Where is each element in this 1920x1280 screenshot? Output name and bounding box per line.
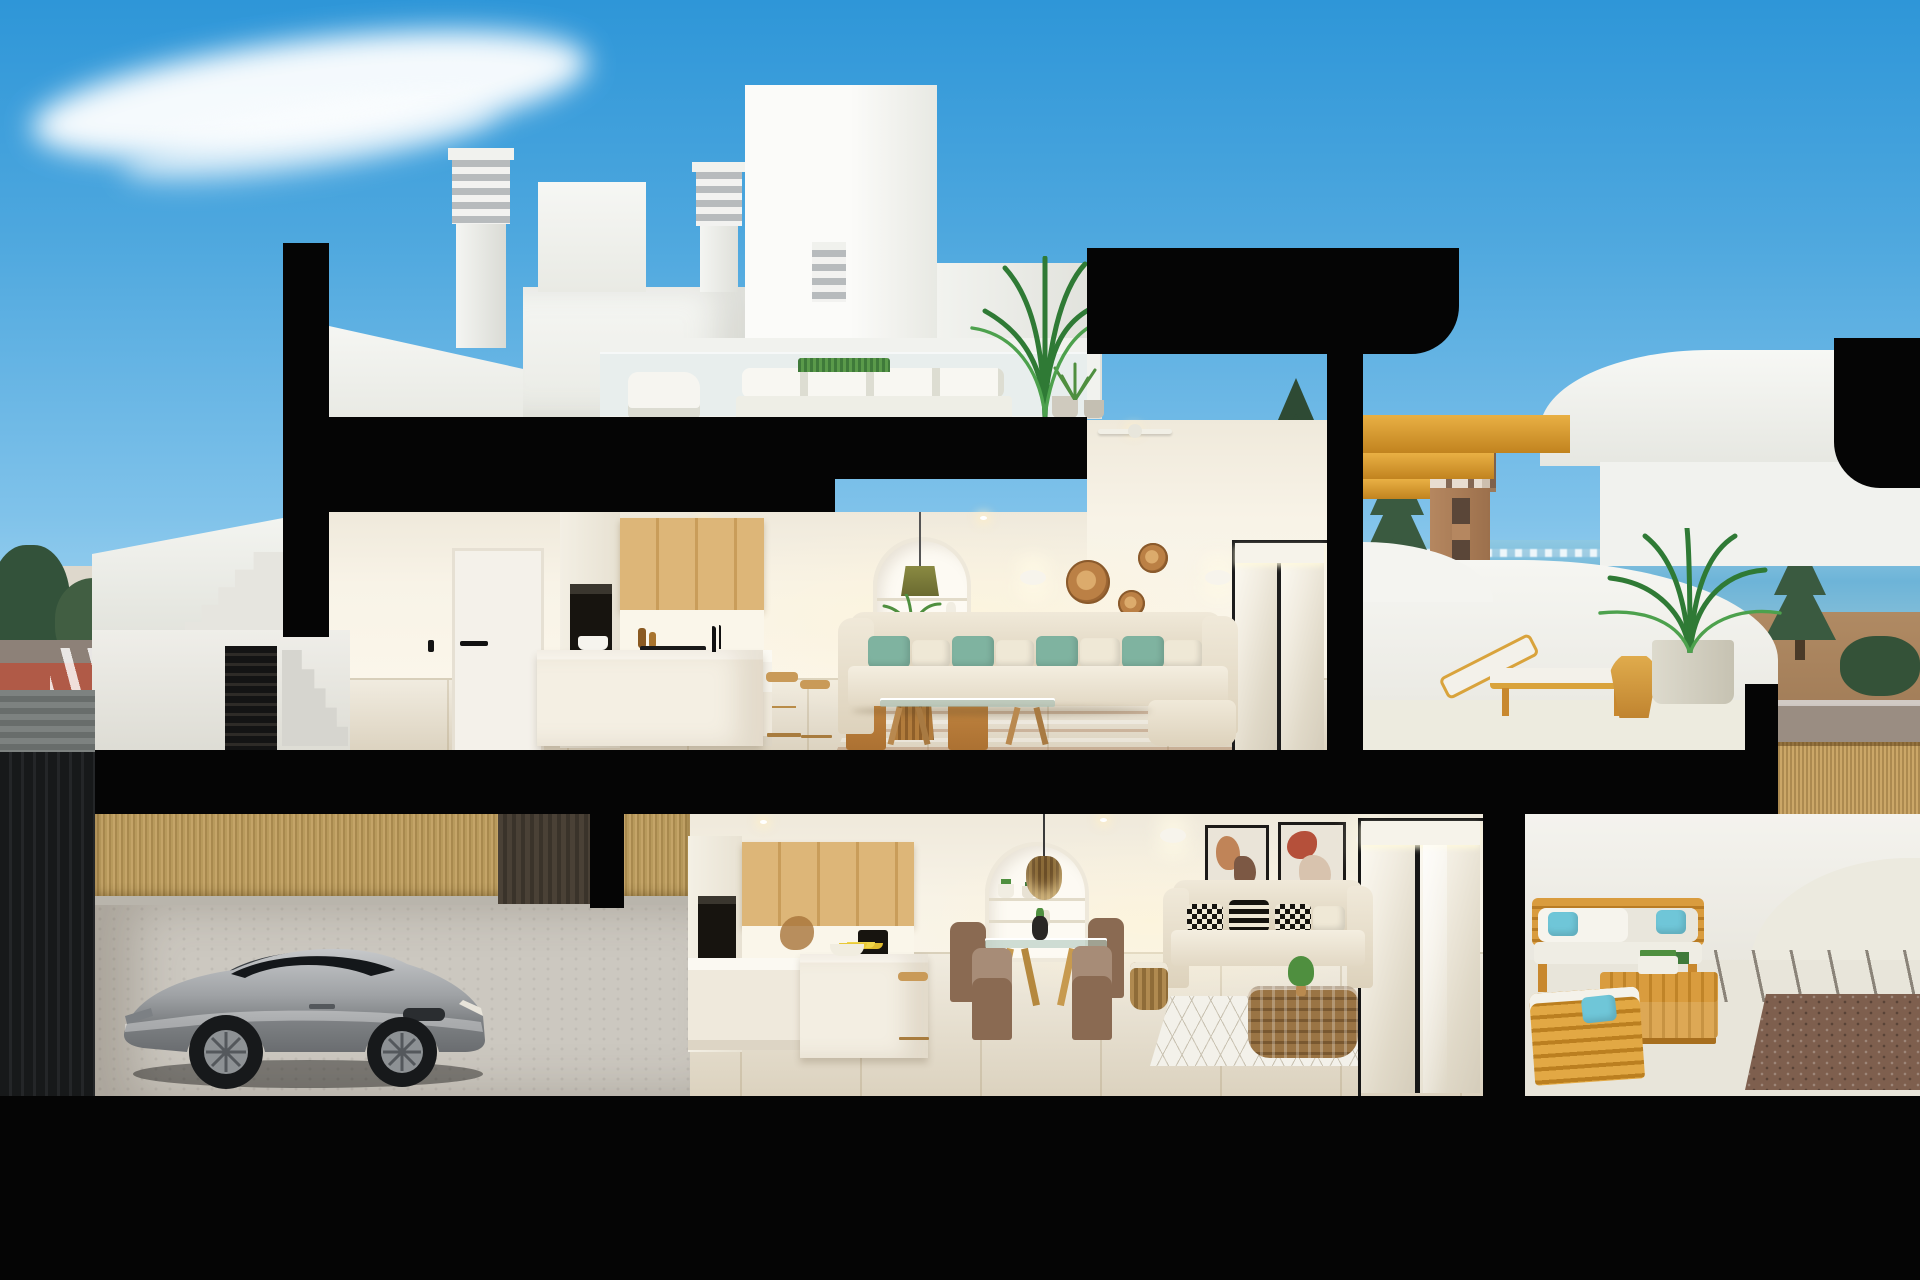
gravel-bed — [1745, 994, 1920, 1090]
chimney-louvered-3 — [812, 250, 846, 302]
upper-cabinets — [742, 842, 914, 926]
stair-soffit-step-2 — [1358, 453, 1494, 479]
niche-plant-pot — [998, 884, 1014, 898]
cut-wall-left — [283, 243, 329, 637]
pillow-turquoise — [1656, 910, 1686, 934]
sofa-seat — [1171, 930, 1365, 966]
upper-door-1-handle — [428, 640, 434, 652]
ground-base — [0, 1096, 1920, 1280]
pillow-cream — [1313, 906, 1345, 932]
ceiling-fan — [1098, 424, 1172, 438]
lower-sofa — [1163, 878, 1373, 1002]
pillow-teal — [952, 636, 994, 668]
basket-table-plant — [1288, 956, 1314, 986]
ceiling-spot — [980, 516, 987, 520]
cut-midfloor-stub — [1745, 684, 1778, 752]
stool-1 — [766, 672, 798, 682]
lower-chair-frontleft — [972, 948, 1012, 1040]
island-faucet — [712, 626, 716, 652]
table-leg — [1005, 707, 1020, 745]
bush-right-2 — [1840, 636, 1920, 696]
cut-roof-band-right — [1087, 248, 1459, 354]
glass-reflection — [1423, 845, 1447, 1093]
pillow-cream — [912, 640, 950, 668]
blind-box — [1361, 821, 1480, 845]
lounger-seat — [1490, 668, 1630, 689]
stool-lower — [898, 972, 928, 981]
table-leg-wood — [1021, 948, 1040, 1006]
upper-door-2 — [452, 548, 544, 756]
stair-soffit-step-1 — [1358, 415, 1570, 453]
pillow-cream — [1164, 640, 1202, 668]
pillow-cream — [996, 640, 1034, 668]
fan-blade — [1128, 424, 1142, 438]
cut-column-right — [1327, 354, 1363, 754]
pendant-lamp-olive — [901, 566, 939, 596]
cut-midfloor-slab — [95, 750, 1778, 814]
rattan-disc-medium — [1138, 543, 1168, 573]
sofa-chaise — [1148, 700, 1236, 746]
ceiling-spot — [1100, 818, 1107, 822]
stool-2 — [800, 680, 830, 689]
chimney-louvered-2 — [692, 162, 746, 292]
lower-kitchen — [630, 814, 960, 1074]
wood-leg — [1538, 964, 1547, 992]
pillow-teal — [1122, 636, 1164, 668]
basket-coffee-table — [1248, 986, 1358, 1058]
lounger-backrest — [1438, 633, 1540, 701]
table-leg — [1033, 707, 1048, 745]
chimney-cap — [448, 148, 514, 160]
glass-top — [880, 698, 1055, 707]
cut-roof-slab-thin — [835, 417, 1087, 479]
scene-stage — [0, 0, 1920, 1280]
chimney-shaft — [456, 224, 506, 348]
pillow-turquoise — [1548, 912, 1578, 936]
roof-bulkhead-2 — [538, 182, 646, 292]
wall-sconce-upper-2 — [1205, 570, 1231, 585]
pendant-cord-lower — [1043, 814, 1045, 858]
neighbour-wall-grey — [0, 690, 95, 752]
chimney-cap — [692, 162, 746, 172]
chimney-louvered-1 — [448, 148, 514, 348]
bottle — [638, 628, 646, 648]
floor-basket — [1130, 962, 1168, 1010]
pillow-teal — [868, 636, 910, 668]
dried-plant — [780, 916, 814, 950]
louvered-gate — [225, 646, 277, 750]
glass-pane — [1235, 543, 1281, 751]
fruit-bowl — [830, 944, 864, 956]
chimney-louvers — [696, 172, 742, 226]
sports-car — [103, 912, 503, 1096]
chimney-louvers — [452, 160, 510, 224]
upper-door-2-handle — [460, 641, 488, 646]
terrace-parapet-curl — [1363, 542, 1493, 602]
pillow-bw-check — [1275, 904, 1311, 932]
lower-sliding-doors — [1358, 818, 1489, 1102]
terrace-palm — [1585, 528, 1785, 653]
cut-junction-lower — [590, 810, 624, 908]
glass-coffee-table — [880, 698, 1055, 746]
upper-cabinets — [620, 518, 764, 610]
rattan-disc-large — [1066, 560, 1110, 604]
pillow-turquoise-front — [1581, 994, 1618, 1023]
roof-armchair — [628, 372, 700, 418]
pendant-cord — [919, 512, 921, 568]
lower-chair-frontright — [1072, 946, 1112, 1040]
blind-box — [1235, 543, 1324, 563]
chimney-shaft — [700, 226, 738, 292]
stair-soffit-step-3 — [1358, 479, 1430, 499]
neighbour-wall-dark — [0, 752, 95, 1096]
pillow-bw-check — [1187, 904, 1223, 932]
cut-piece-far-right — [1834, 338, 1920, 488]
pillow-bw-stripe — [1229, 900, 1269, 932]
table-leg — [915, 707, 930, 745]
lounger-leg — [1502, 688, 1509, 716]
roof-planter-grass — [798, 358, 890, 372]
built-in-oven — [698, 896, 736, 962]
pillow-teal — [1036, 636, 1078, 668]
pot-white — [578, 636, 608, 650]
island-lower — [800, 954, 928, 1058]
table-leg — [887, 707, 902, 745]
cut-roof-slab-thick — [329, 417, 835, 512]
wall-sconce-lower-1 — [1160, 828, 1186, 843]
pillow-cream — [1080, 638, 1120, 668]
cut-column-lower-right — [1483, 810, 1525, 1096]
glass-pane — [1281, 543, 1324, 751]
wall-sconce-upper-1 — [1020, 570, 1046, 585]
table-planter — [1638, 956, 1678, 974]
rattan-pendant — [1026, 856, 1062, 900]
upper-sliding-door — [1232, 540, 1333, 760]
kitchen-island — [537, 650, 763, 746]
lower-centerpiece — [1032, 916, 1048, 940]
